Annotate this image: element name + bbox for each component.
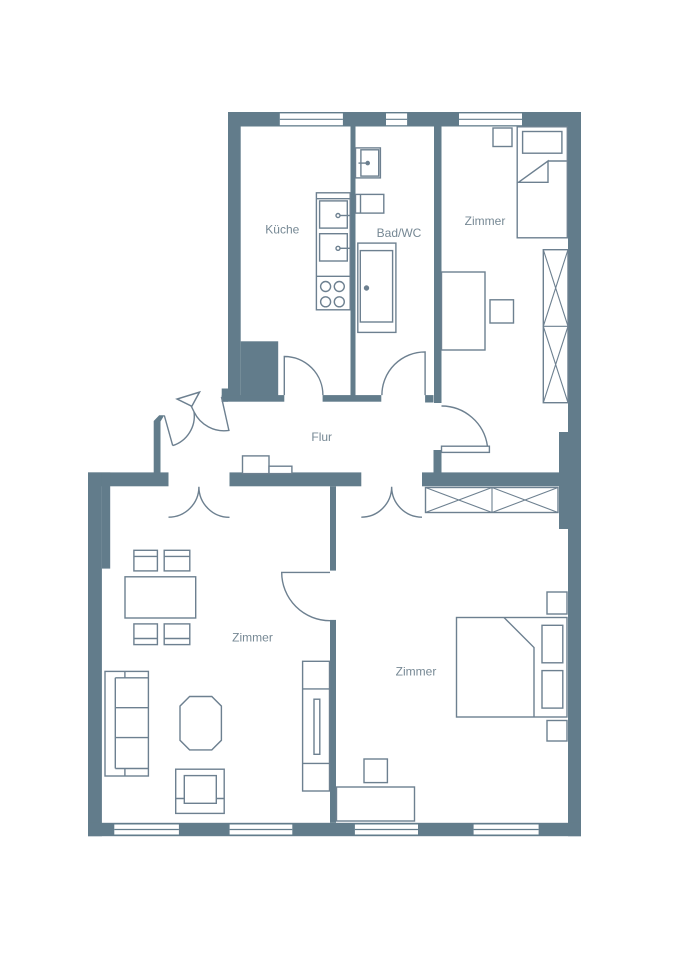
svg-text:Flur: Flur [311,430,332,444]
svg-text:Zimmer: Zimmer [232,631,273,645]
svg-text:Zimmer: Zimmer [396,665,437,679]
svg-text:Bad/WC: Bad/WC [377,226,422,240]
svg-text:Küche: Küche [265,223,299,237]
svg-text:Zimmer: Zimmer [465,214,506,228]
